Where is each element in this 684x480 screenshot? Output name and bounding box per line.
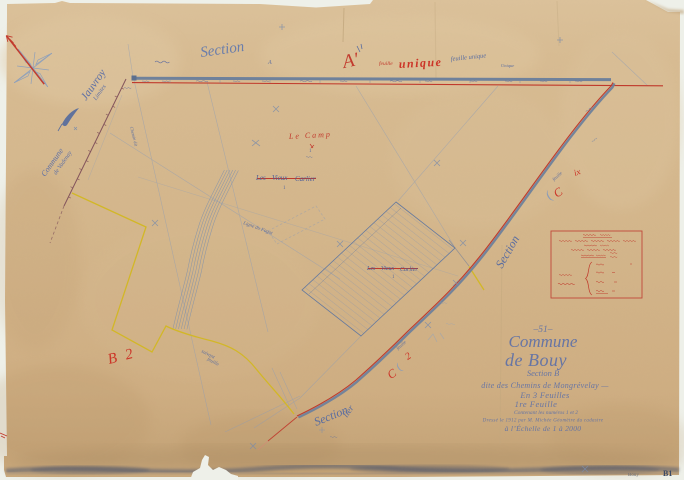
- svg-text:Les: Les: [366, 266, 376, 272]
- svg-text:Unique: Unique: [501, 63, 514, 68]
- svg-text:feuille: feuille: [379, 60, 393, 67]
- svg-text:Les: Les: [255, 174, 266, 182]
- svg-text:1re Feuille: 1re Feuille: [515, 399, 558, 409]
- svg-text:Contenant les numéros 1 et 2: Contenant les numéros 1 et 2: [514, 410, 578, 416]
- svg-text:Carlier: Carlier: [400, 267, 418, 273]
- svg-text:Dressé le 1912 par M. Michée G: Dressé le 1912 par M. Michée Géomètre du…: [482, 419, 604, 424]
- svg-text:de Bouy: de Bouy: [505, 350, 567, 370]
- svg-text:Vieux: Vieux: [381, 266, 395, 272]
- svg-text:A: A: [267, 60, 272, 66]
- svg-text:Bouy: Bouy: [628, 473, 639, 478]
- svg-text:Section B: Section B: [527, 368, 559, 378]
- svg-text:Commune: Commune: [509, 332, 578, 351]
- svg-text:unique: unique: [398, 55, 442, 71]
- svg-text:à l’Échelle de 1 à 2000: à l’Échelle de 1 à 2000: [505, 423, 582, 433]
- svg-text:dite des Chemins de Mongrévela: dite des Chemins de Mongrévelay —: [481, 381, 609, 390]
- svg-text:B1: B1: [663, 469, 672, 478]
- svg-text:Carlier: Carlier: [295, 175, 316, 183]
- svg-text:Vieux: Vieux: [272, 174, 288, 182]
